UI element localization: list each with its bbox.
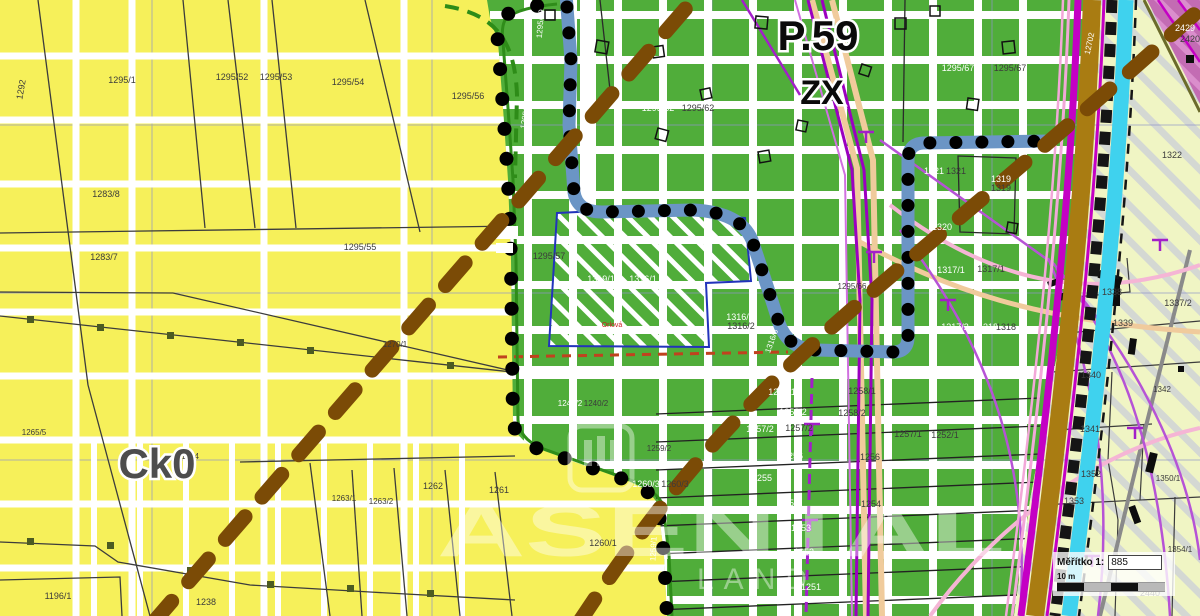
parcel-label: 1316/2	[727, 321, 755, 331]
parcel-label: 1321	[924, 166, 944, 176]
scale-bar-segment	[1138, 583, 1165, 591]
parcel-label: 1196/1	[45, 591, 72, 601]
parcel-label: 1238	[196, 597, 216, 607]
parcel-label: 1295/62	[682, 103, 715, 113]
parcel-label: 1295/67	[942, 63, 975, 73]
parcel-label: 1257/2	[785, 423, 813, 433]
scale-bar-segment	[1084, 583, 1111, 591]
parcel-label: 2420	[1180, 34, 1200, 44]
parcel-label: 1295/1	[108, 75, 136, 85]
scale-bar	[1057, 582, 1165, 592]
parcel-label: 1265/5	[22, 428, 47, 437]
parcel-label: 1258/2	[779, 407, 807, 417]
scale-label: Měřítko 1:	[1057, 557, 1104, 568]
map-viewport[interactable]: ASENTAL LAND 12921295/11295/521295/53129…	[0, 0, 1200, 616]
parcel-label: 1321	[946, 166, 966, 176]
parcel-label: 1263/2	[369, 497, 394, 506]
parcel-label: 1319	[991, 183, 1011, 193]
parcel-label: 1295/53	[260, 72, 293, 82]
zone-label-zx: ZX	[800, 74, 844, 112]
map-canvas[interactable]: ASENTAL LAND 12921295/11295/521295/53129…	[0, 0, 1200, 616]
parcel-label: 1258/2	[838, 408, 866, 418]
parcel-label: 1341	[1080, 424, 1100, 434]
parcel-label: 1295/54	[332, 77, 365, 87]
parcel-label: 1295/66	[838, 282, 867, 291]
parcel-label: 1260/1	[589, 538, 617, 548]
parcel-label: 1316/1	[629, 274, 657, 284]
parcel-label: 1262	[423, 481, 443, 491]
parcel-label: 1283/7	[90, 252, 118, 262]
parcel-label: 1322	[1162, 150, 1182, 160]
zone-label-ck0: Ck0	[118, 440, 195, 487]
parcel-label: 1261	[489, 485, 509, 495]
parcel-label: 1257/2	[746, 424, 774, 434]
parcel-label: 1253	[791, 523, 811, 533]
parcel-label: 1295/52	[216, 72, 249, 82]
parcel-label: 1339	[1113, 318, 1133, 328]
scale-bar-segment	[1057, 583, 1084, 591]
parcel-label: 1240/2	[558, 399, 583, 408]
parcel-label: 1260/3	[661, 479, 689, 489]
scale-bar-label: 10 m	[1057, 572, 1171, 581]
parcel-label: 1318	[996, 322, 1016, 332]
parcel-label: 1337/2	[1164, 298, 1192, 308]
parcel-label: 1295/67	[994, 63, 1027, 73]
parcel-label: 1350/1	[1156, 474, 1181, 483]
parcel-label: 1255	[752, 473, 772, 483]
parcel-label: 1317/2	[941, 322, 969, 332]
parcel-label: 1353	[1064, 496, 1084, 506]
parcel-label: 1317/1	[977, 264, 1005, 274]
parcel-label: 1295/62	[642, 103, 675, 113]
parcel-label: 1340	[1081, 370, 1101, 380]
scale-widget: Měřítko 1: 10 m	[1053, 552, 1175, 596]
parcel-label: 1252/1	[931, 430, 959, 440]
watermark-text-2: LAND	[697, 563, 817, 596]
parcel-label: 1320	[932, 222, 952, 232]
parcel-label: 1254	[779, 498, 799, 508]
parcel-label: 1259/1	[648, 536, 658, 561]
parcel-label: 1338	[1102, 287, 1122, 297]
parcel-label: 1258/1	[848, 386, 876, 396]
parcel-label: 1259/2	[647, 444, 672, 453]
parcel-label: 2429	[1175, 23, 1195, 33]
parcel-label: 1256	[783, 451, 803, 461]
parcel-label: 1251	[801, 582, 821, 592]
watermark-text-1: ASENTAL	[437, 492, 1005, 572]
parcel-label: 1254	[861, 499, 881, 509]
scale-bar-segment	[1111, 583, 1138, 591]
parcel-label: 1342	[1153, 385, 1171, 394]
parcel-label: 1295/56	[452, 91, 485, 101]
parcel-label: 1240/2	[584, 399, 609, 408]
parcel-label: 1352	[1081, 469, 1101, 479]
parcel-label: 1252	[794, 547, 814, 557]
parcel-label: 1295/55	[344, 242, 377, 252]
parcel-label: 1317/1	[937, 265, 965, 275]
parcel-label: 1263/1	[332, 494, 357, 503]
zone-label-p59: P.59	[778, 12, 859, 59]
parcel-label: 1256	[860, 452, 880, 462]
parcel-label: 1257/1	[894, 429, 922, 439]
parcel-label: 1260/3	[632, 479, 660, 489]
parcel-label: 1258/1	[768, 387, 796, 397]
parcel-label: 1283/8	[92, 189, 120, 199]
parcel-label: Orlová	[602, 322, 623, 329]
parcel-label: 1295/57	[533, 251, 566, 261]
parcel-label: 1270/1	[383, 340, 408, 349]
parcel-label: 1319/1	[587, 274, 615, 284]
scale-input[interactable]	[1108, 555, 1162, 570]
